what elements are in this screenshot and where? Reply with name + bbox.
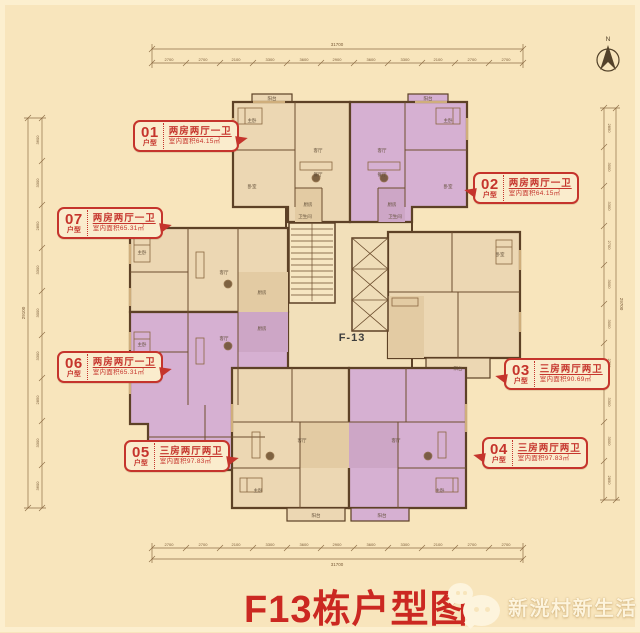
svg-text:3300: 3300: [607, 202, 612, 212]
unit-number-cell: 05 户型: [131, 443, 155, 469]
north-label: N: [606, 36, 611, 43]
unit-area: 室内面积65.31㎡: [93, 368, 156, 377]
unit-label-06: 06 户型 两房两厅一卫 室内面积65.31㎡: [57, 351, 163, 383]
svg-text:主卧: 主卧: [254, 487, 263, 494]
stairs: [289, 223, 335, 303]
svg-text:主卧: 主卧: [138, 341, 147, 348]
svg-text:客厅: 客厅: [298, 437, 307, 444]
unit-desc-cell: 三房两厅两卫 室内面积97.83㎡: [513, 440, 581, 466]
svg-text:3600: 3600: [35, 135, 40, 145]
svg-text:2700: 2700: [607, 241, 612, 251]
unit-label-02: 02 户型 两房两厅一卫 室内面积64.15㎡: [473, 172, 579, 204]
svg-text:阳台: 阳台: [312, 512, 321, 519]
unit-tag: 户型: [67, 371, 81, 378]
page-title: F13栋户型图: [244, 578, 468, 633]
unit-number-cell: 06 户型: [64, 354, 88, 380]
svg-text:3600: 3600: [367, 57, 377, 62]
dim-total-left: 29100: [21, 306, 26, 319]
svg-text:厨房: 厨房: [258, 325, 267, 332]
unit-layout: 两房两厅一卫: [93, 357, 156, 368]
unit-number: 04: [490, 443, 508, 457]
svg-text:厨房: 厨房: [304, 201, 313, 208]
unit-area: 室内面积90.69㎡: [540, 375, 603, 384]
flyer: 31700 2700 2700 2100 3300 3600 2900 3600…: [0, 0, 640, 632]
svg-text:主卧: 主卧: [444, 117, 453, 124]
unit-number-cell: 03 户型: [511, 361, 535, 387]
floor-plan: 31700 2700 2700 2100 3300 3600 2900 3600…: [0, 0, 640, 632]
unit-label-01: 01 户型 两房两厅一卫 室内面积64.15㎡: [133, 120, 239, 152]
svg-text:客厅: 客厅: [220, 269, 229, 276]
svg-text:主卧: 主卧: [138, 249, 147, 256]
unit-tag: 户型: [514, 378, 528, 385]
unit-desc-cell: 两房两厅一卫 室内面积64.15㎡: [504, 175, 572, 201]
bubble-tail-icon: [159, 221, 173, 233]
svg-text:2900: 2900: [333, 542, 343, 547]
unit-tag: 户型: [134, 460, 148, 467]
svg-text:2850: 2850: [607, 124, 612, 134]
unit-layout: 两房两厅一卫: [509, 178, 572, 189]
svg-text:3600: 3600: [35, 481, 40, 491]
unit-number-cell: 02 户型: [480, 175, 504, 201]
unit-number: 03: [512, 364, 530, 378]
brand-name: 新洸村新生活: [508, 592, 637, 621]
unit-number: 06: [65, 357, 83, 371]
unit-desc-cell: 三房两厅两卫 室内面积97.83㎡: [155, 443, 223, 469]
unit-tag: 户型: [143, 140, 157, 147]
dim-total-right: 29700: [619, 298, 624, 311]
bubble-tail-icon: [226, 454, 240, 466]
svg-text:2100: 2100: [232, 57, 242, 62]
unit-layout: 两房两厅一卫: [93, 213, 156, 224]
unit-tag: 户型: [67, 227, 81, 234]
wechat-footer: 新洸村新生活: [446, 582, 638, 630]
bubble-tail-icon: [235, 134, 249, 146]
unit-desc-cell: 两房两厅一卫 室内面积65.31㎡: [88, 210, 156, 236]
svg-text:餐厅: 餐厅: [314, 171, 323, 178]
svg-text:3600: 3600: [300, 57, 310, 62]
svg-text:客厅: 客厅: [220, 335, 229, 342]
dim-total-bottom: 31700: [331, 562, 344, 567]
bubble-tail-icon: [463, 186, 477, 198]
svg-text:2100: 2100: [434, 542, 444, 547]
svg-text:2700: 2700: [468, 57, 478, 62]
unit-layout: 三房两厅两卫: [160, 446, 223, 457]
svg-text:2700: 2700: [502, 542, 512, 547]
unit-desc-cell: 两房两厅一卫 室内面积64.15㎡: [164, 123, 232, 149]
bubble-tail-icon: [448, 596, 458, 606]
wechat-icon: [446, 583, 504, 629]
svg-text:客厅: 客厅: [392, 437, 401, 444]
svg-text:卧室: 卧室: [496, 251, 505, 258]
unit-area: 室内面积65.31㎡: [93, 224, 156, 233]
svg-text:厨房: 厨房: [388, 201, 397, 208]
unit-desc-cell: 两房两厅一卫 室内面积65.31㎡: [88, 354, 156, 380]
north-compass-icon: N: [597, 36, 619, 71]
unit-label-05: 05 户型 三房两厅两卫 室内面积97.83㎡: [124, 440, 230, 472]
svg-text:厨房: 厨房: [258, 289, 267, 296]
svg-text:3300: 3300: [401, 57, 411, 62]
unit-label-03: 03 户型 三房两厅两卫 室内面积90.69㎡: [504, 358, 610, 390]
svg-text:阳台: 阳台: [424, 95, 433, 102]
svg-text:2850: 2850: [607, 476, 612, 486]
svg-text:3000: 3000: [607, 320, 612, 330]
bubble-tail-icon: [464, 616, 477, 629]
svg-text:卧室: 卧室: [444, 183, 453, 190]
svg-text:2700: 2700: [502, 57, 512, 62]
svg-text:3300: 3300: [607, 398, 612, 408]
svg-text:阳台: 阳台: [454, 365, 463, 372]
svg-text:2700: 2700: [165, 57, 175, 62]
svg-text:阳台: 阳台: [378, 512, 387, 519]
unit-desc-cell: 三房两厅两卫 室内面积90.69㎡: [535, 361, 603, 387]
wechat-bubble-big: [463, 595, 500, 626]
svg-text:3000: 3000: [35, 308, 40, 318]
svg-text:2850: 2850: [35, 395, 40, 405]
svg-text:卫生间: 卫生间: [388, 213, 402, 220]
unit-layout: 三房两厅两卫: [518, 443, 581, 454]
unit-number: 05: [132, 446, 150, 460]
svg-text:主卧: 主卧: [436, 487, 445, 494]
unit-label-04: 04 户型 三房两厅两卫 室内面积97.83㎡: [482, 437, 588, 469]
eye-dot: [463, 591, 467, 595]
svg-text:2100: 2100: [232, 542, 242, 547]
svg-text:客厅: 客厅: [314, 147, 323, 154]
svg-text:3300: 3300: [35, 178, 40, 188]
svg-text:3300: 3300: [35, 265, 40, 275]
unit-area: 室内面积97.83㎡: [160, 457, 223, 466]
svg-text:2900: 2900: [333, 57, 343, 62]
unit-number-cell: 04 户型: [489, 440, 513, 466]
svg-text:卧室: 卧室: [248, 183, 257, 190]
svg-text:3300: 3300: [266, 542, 276, 547]
eye-dot: [474, 607, 479, 612]
svg-text:2700: 2700: [199, 542, 209, 547]
svg-text:3000: 3000: [607, 163, 612, 173]
dim-total-top: 31700: [331, 42, 344, 47]
unit-area: 室内面积64.15㎡: [509, 189, 572, 198]
svg-text:2100: 2100: [434, 57, 444, 62]
unit-number: 01: [141, 126, 159, 140]
svg-text:客厅: 客厅: [378, 147, 387, 154]
svg-text:3600: 3600: [300, 542, 310, 547]
svg-text:3600: 3600: [367, 542, 377, 547]
svg-text:2700: 2700: [199, 57, 209, 62]
unit-tag: 户型: [483, 192, 497, 199]
elevators: [352, 238, 388, 331]
unit-layout: 两房两厅一卫: [169, 126, 232, 137]
svg-text:阳台: 阳台: [268, 95, 277, 102]
unit-tag: 户型: [492, 457, 506, 464]
svg-text:2700: 2700: [468, 542, 478, 547]
unit-area: 室内面积97.83㎡: [518, 454, 581, 463]
bubble-tail-icon: [494, 372, 508, 384]
unit-number: 02: [481, 178, 499, 192]
eye-dot: [485, 607, 490, 612]
svg-text:2700: 2700: [165, 542, 175, 547]
eye-dot: [456, 591, 460, 595]
svg-text:3300: 3300: [35, 438, 40, 448]
unit-label-07: 07 户型 两房两厅一卫 室内面积65.31㎡: [57, 207, 163, 239]
unit-area: 室内面积64.15㎡: [169, 137, 232, 146]
svg-text:卫生间: 卫生间: [298, 213, 312, 220]
unit-number-cell: 01 户型: [140, 123, 164, 149]
building-code-label: F-13: [339, 332, 366, 344]
svg-text:3300: 3300: [35, 351, 40, 361]
svg-text:餐厅: 餐厅: [378, 171, 387, 178]
bubble-tail-icon: [472, 451, 486, 463]
svg-text:3300: 3300: [266, 57, 276, 62]
unit-number: 07: [65, 213, 83, 227]
svg-text:3000: 3000: [607, 280, 612, 290]
bubble-tail-icon: [159, 365, 173, 377]
unit-layout: 三房两厅两卫: [540, 364, 603, 375]
svg-text:3000: 3000: [607, 437, 612, 447]
svg-text:2850: 2850: [35, 221, 40, 231]
svg-text:主卧: 主卧: [248, 117, 257, 124]
svg-text:3300: 3300: [401, 542, 411, 547]
unit-number-cell: 07 户型: [64, 210, 88, 236]
